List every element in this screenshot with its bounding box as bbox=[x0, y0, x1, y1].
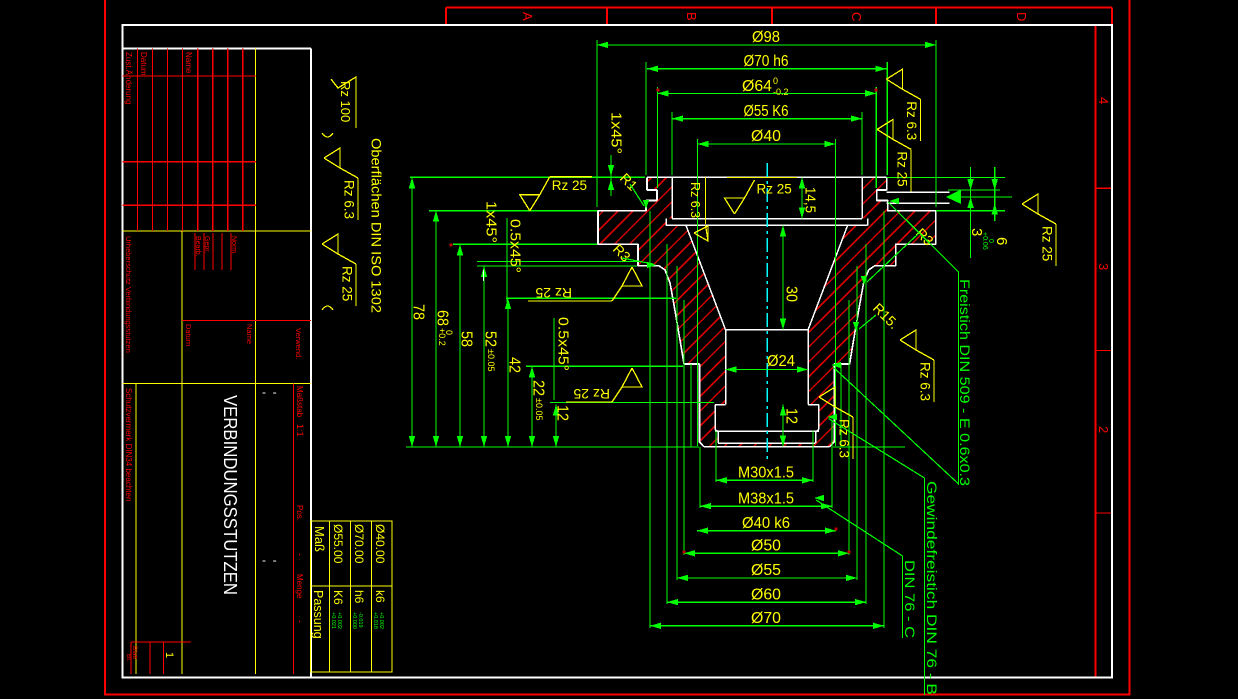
svg-text:Datum: Datum bbox=[184, 324, 193, 346]
svg-text:Ø40: Ø40 bbox=[751, 128, 781, 145]
svg-text:0.5x45°: 0.5x45° bbox=[507, 219, 524, 273]
svg-text:-: - bbox=[295, 620, 305, 623]
svg-text:D: D bbox=[1014, 12, 1029, 21]
svg-text:Menge: Menge bbox=[295, 574, 304, 599]
svg-text:Rz 6.3: Rz 6.3 bbox=[904, 101, 919, 140]
svg-text:14,5: 14,5 bbox=[802, 187, 819, 213]
svg-text:Gepr.: Gepr. bbox=[203, 236, 210, 253]
svg-text:Norm: Norm bbox=[230, 236, 237, 253]
svg-text:Bearb.: Bearb. bbox=[194, 236, 201, 257]
svg-text:+0.000: +0.000 bbox=[351, 612, 357, 629]
svg-text:22: 22 bbox=[530, 380, 547, 396]
svg-text:Gewindefreistich DIN 76 - B: Gewindefreistich DIN 76 - B bbox=[924, 481, 939, 695]
svg-text:Datum: Datum bbox=[139, 52, 148, 76]
svg-text:6: 6 bbox=[993, 237, 1010, 245]
svg-text:Rz 25: Rz 25 bbox=[573, 386, 610, 402]
svg-text:+0.06: +0.06 bbox=[981, 232, 988, 250]
svg-text:58: 58 bbox=[458, 331, 475, 347]
svg-text:A: A bbox=[520, 12, 535, 21]
svg-text:1: 1 bbox=[163, 652, 175, 658]
svg-text:2: 2 bbox=[1096, 426, 1111, 433]
svg-text:Ø70 h6: Ø70 h6 bbox=[744, 53, 789, 70]
svg-text:Maß: Maß bbox=[312, 526, 327, 552]
svg-text:68: 68 bbox=[434, 310, 451, 326]
svg-text:Rz 6.3: Rz 6.3 bbox=[688, 182, 702, 218]
svg-text:1x45°: 1x45° bbox=[608, 112, 625, 154]
svg-text:-0.2: -0.2 bbox=[773, 87, 789, 97]
svg-text:- -: - - bbox=[262, 385, 277, 399]
svg-text:DIN 76 - C: DIN 76 - C bbox=[902, 560, 917, 638]
svg-text:12: 12 bbox=[783, 408, 800, 424]
svg-text:Bl.: Bl. bbox=[125, 654, 132, 662]
svg-text:k6: k6 bbox=[373, 590, 387, 603]
svg-text:Urheberschutz Verbindungsstutz: Urheberschutz Verbindungsstutzen bbox=[124, 236, 133, 353]
svg-text:Pos.: Pos. bbox=[295, 505, 304, 521]
svg-text:-: - bbox=[295, 553, 305, 556]
svg-text:Rz 25: Rz 25 bbox=[535, 285, 572, 301]
svg-text:1x45°: 1x45° bbox=[483, 201, 500, 243]
svg-text:Rz 6.3: Rz 6.3 bbox=[918, 362, 933, 401]
svg-text:±0.05: ±0.05 bbox=[534, 398, 544, 420]
svg-text:Rz 25: Rz 25 bbox=[552, 178, 587, 193]
svg-text:Name: Name bbox=[245, 324, 254, 344]
svg-text:12: 12 bbox=[554, 405, 571, 421]
svg-text:52: 52 bbox=[482, 331, 499, 347]
svg-text:+0.021: +0.021 bbox=[330, 612, 336, 629]
svg-text:0: 0 bbox=[444, 330, 454, 335]
svg-text:Rz 6.3: Rz 6.3 bbox=[342, 180, 357, 219]
svg-text:Rz 25: Rz 25 bbox=[340, 266, 355, 301]
svg-text:Ø50: Ø50 bbox=[751, 538, 781, 555]
svg-text:0: 0 bbox=[987, 239, 994, 243]
svg-text:Name: Name bbox=[184, 52, 193, 74]
svg-text:30: 30 bbox=[783, 286, 800, 302]
svg-text:4: 4 bbox=[1096, 97, 1111, 104]
svg-text:VERBINDUNGSSTUTZEN: VERBINDUNGSSTUTZEN bbox=[220, 395, 240, 595]
svg-text:+0.002: +0.002 bbox=[378, 612, 384, 629]
svg-text:42: 42 bbox=[506, 357, 523, 373]
svg-text:-0.019: -0.019 bbox=[357, 612, 363, 628]
svg-text:M30x1.5: M30x1.5 bbox=[738, 465, 794, 482]
svg-text:78: 78 bbox=[410, 304, 427, 320]
svg-text:Schutzvermerk DIN34 beachten: Schutzvermerk DIN34 beachten bbox=[124, 388, 133, 501]
svg-text:+0.002: +0.002 bbox=[336, 612, 342, 629]
svg-text:Ø64: Ø64 bbox=[742, 78, 772, 95]
svg-text:±0.05: ±0.05 bbox=[486, 349, 496, 371]
svg-text:Ø55 K6: Ø55 K6 bbox=[744, 103, 789, 120]
svg-text:Zust.Änderung: Zust.Änderung bbox=[124, 52, 133, 104]
svg-text:B: B bbox=[684, 12, 699, 21]
svg-text:Ø40 k6: Ø40 k6 bbox=[742, 515, 790, 532]
svg-text:Verwend.: Verwend. bbox=[294, 328, 303, 359]
svg-text:0: 0 bbox=[773, 76, 778, 86]
svg-text:3: 3 bbox=[1096, 263, 1111, 270]
svg-text:M38x1.5: M38x1.5 bbox=[738, 490, 794, 507]
svg-text:Passung: Passung bbox=[311, 590, 325, 639]
svg-text:Maßstab: Maßstab bbox=[295, 386, 304, 418]
svg-text:Rz 25: Rz 25 bbox=[895, 151, 910, 186]
svg-text:Ø60: Ø60 bbox=[751, 586, 781, 603]
svg-text:Ø55: Ø55 bbox=[751, 562, 781, 579]
svg-text:Ø55.00: Ø55.00 bbox=[331, 524, 345, 564]
svg-text:0.5x45°: 0.5x45° bbox=[555, 317, 572, 371]
svg-text:1:1: 1:1 bbox=[295, 424, 305, 437]
svg-text:Ø70: Ø70 bbox=[751, 610, 781, 627]
svg-text:Rz 100: Rz 100 bbox=[338, 81, 353, 122]
svg-text:Ø40.00: Ø40.00 bbox=[373, 524, 387, 564]
svg-text:C: C bbox=[849, 12, 864, 21]
svg-text:- -: - - bbox=[262, 553, 277, 567]
svg-text:Rz 25: Rz 25 bbox=[1040, 226, 1055, 261]
svg-text:Rz 25: Rz 25 bbox=[757, 182, 792, 197]
svg-text:+0.018: +0.018 bbox=[372, 612, 378, 629]
svg-text:Ø70.00: Ø70.00 bbox=[352, 524, 366, 564]
svg-text:Ø98: Ø98 bbox=[752, 29, 780, 46]
svg-text:h6: h6 bbox=[352, 590, 366, 604]
svg-text:K6: K6 bbox=[331, 590, 345, 605]
svg-text:Freistich DIN 509 - E 0.6x0.3: Freistich DIN 509 - E 0.6x0.3 bbox=[957, 279, 972, 486]
svg-text:Ø24: Ø24 bbox=[767, 353, 795, 370]
svg-text:Oberflächen DIN ISO 1302: Oberflächen DIN ISO 1302 bbox=[369, 138, 384, 313]
